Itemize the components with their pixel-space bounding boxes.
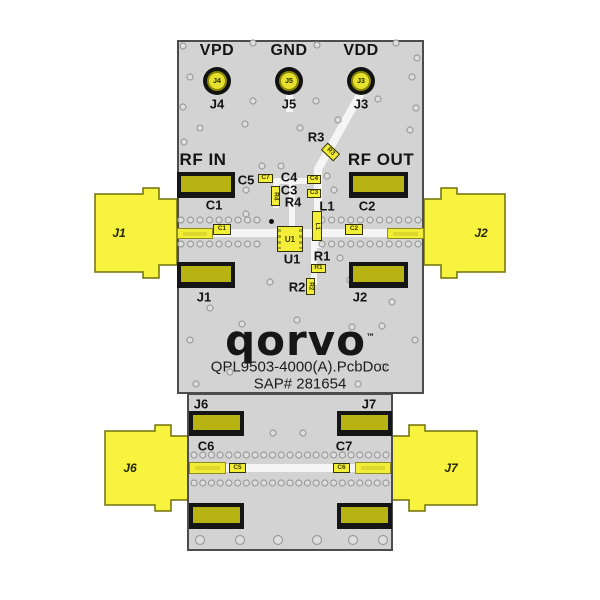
vdd-label: VDD: [343, 42, 378, 60]
connector-j1-label: J1: [112, 226, 125, 240]
j4-silk: J4: [210, 97, 224, 112]
trademark-symbol: ™: [366, 333, 375, 343]
r3-silk: R3: [308, 130, 325, 145]
j2-silk: J2: [353, 290, 367, 305]
board-title: QPL9503-4000(A).PcbDoc: [211, 359, 389, 376]
rf-out-label: RF OUT: [348, 150, 414, 170]
connector-j7-label: J7: [444, 461, 457, 475]
gnd-label: GND: [270, 42, 307, 60]
connector-j2-label: J2: [474, 226, 487, 240]
j5-silk: J5: [282, 97, 296, 112]
r1-silk: R1: [314, 249, 331, 264]
r4-silk: R4: [285, 195, 302, 210]
j1-silk: J1: [197, 290, 211, 305]
pcb-evaluation-board-render: J1 J2 J6 J7 C1 C2 C7 C4 C3 R4 L1 R3 R1 R…: [0, 0, 600, 600]
rf-in-label: RF IN: [180, 150, 227, 170]
c1-silk: C1: [206, 198, 223, 213]
l1-silk: L1: [319, 199, 334, 214]
board-sap-number: SAP# 281654: [254, 376, 347, 393]
connector-j6-label: J6: [123, 461, 136, 475]
j6-silk: J6: [194, 397, 208, 412]
j7-silk: J7: [362, 397, 376, 412]
c5-silk: C5: [238, 173, 255, 188]
qorvo-logo: qorvo™: [225, 320, 375, 362]
r2-silk: R2: [289, 280, 306, 295]
c7-silk: C7: [336, 439, 353, 454]
vpd-label: VPD: [200, 42, 234, 60]
j3-silk: J3: [354, 97, 368, 112]
u1-silk: U1: [284, 252, 301, 267]
silkscreen-layer: VPD GND VDD J4 J5 J3 RF IN RF OUT C5 C4 …: [0, 0, 600, 600]
c2-silk: C2: [359, 199, 376, 214]
c6-silk: C6: [198, 439, 215, 454]
